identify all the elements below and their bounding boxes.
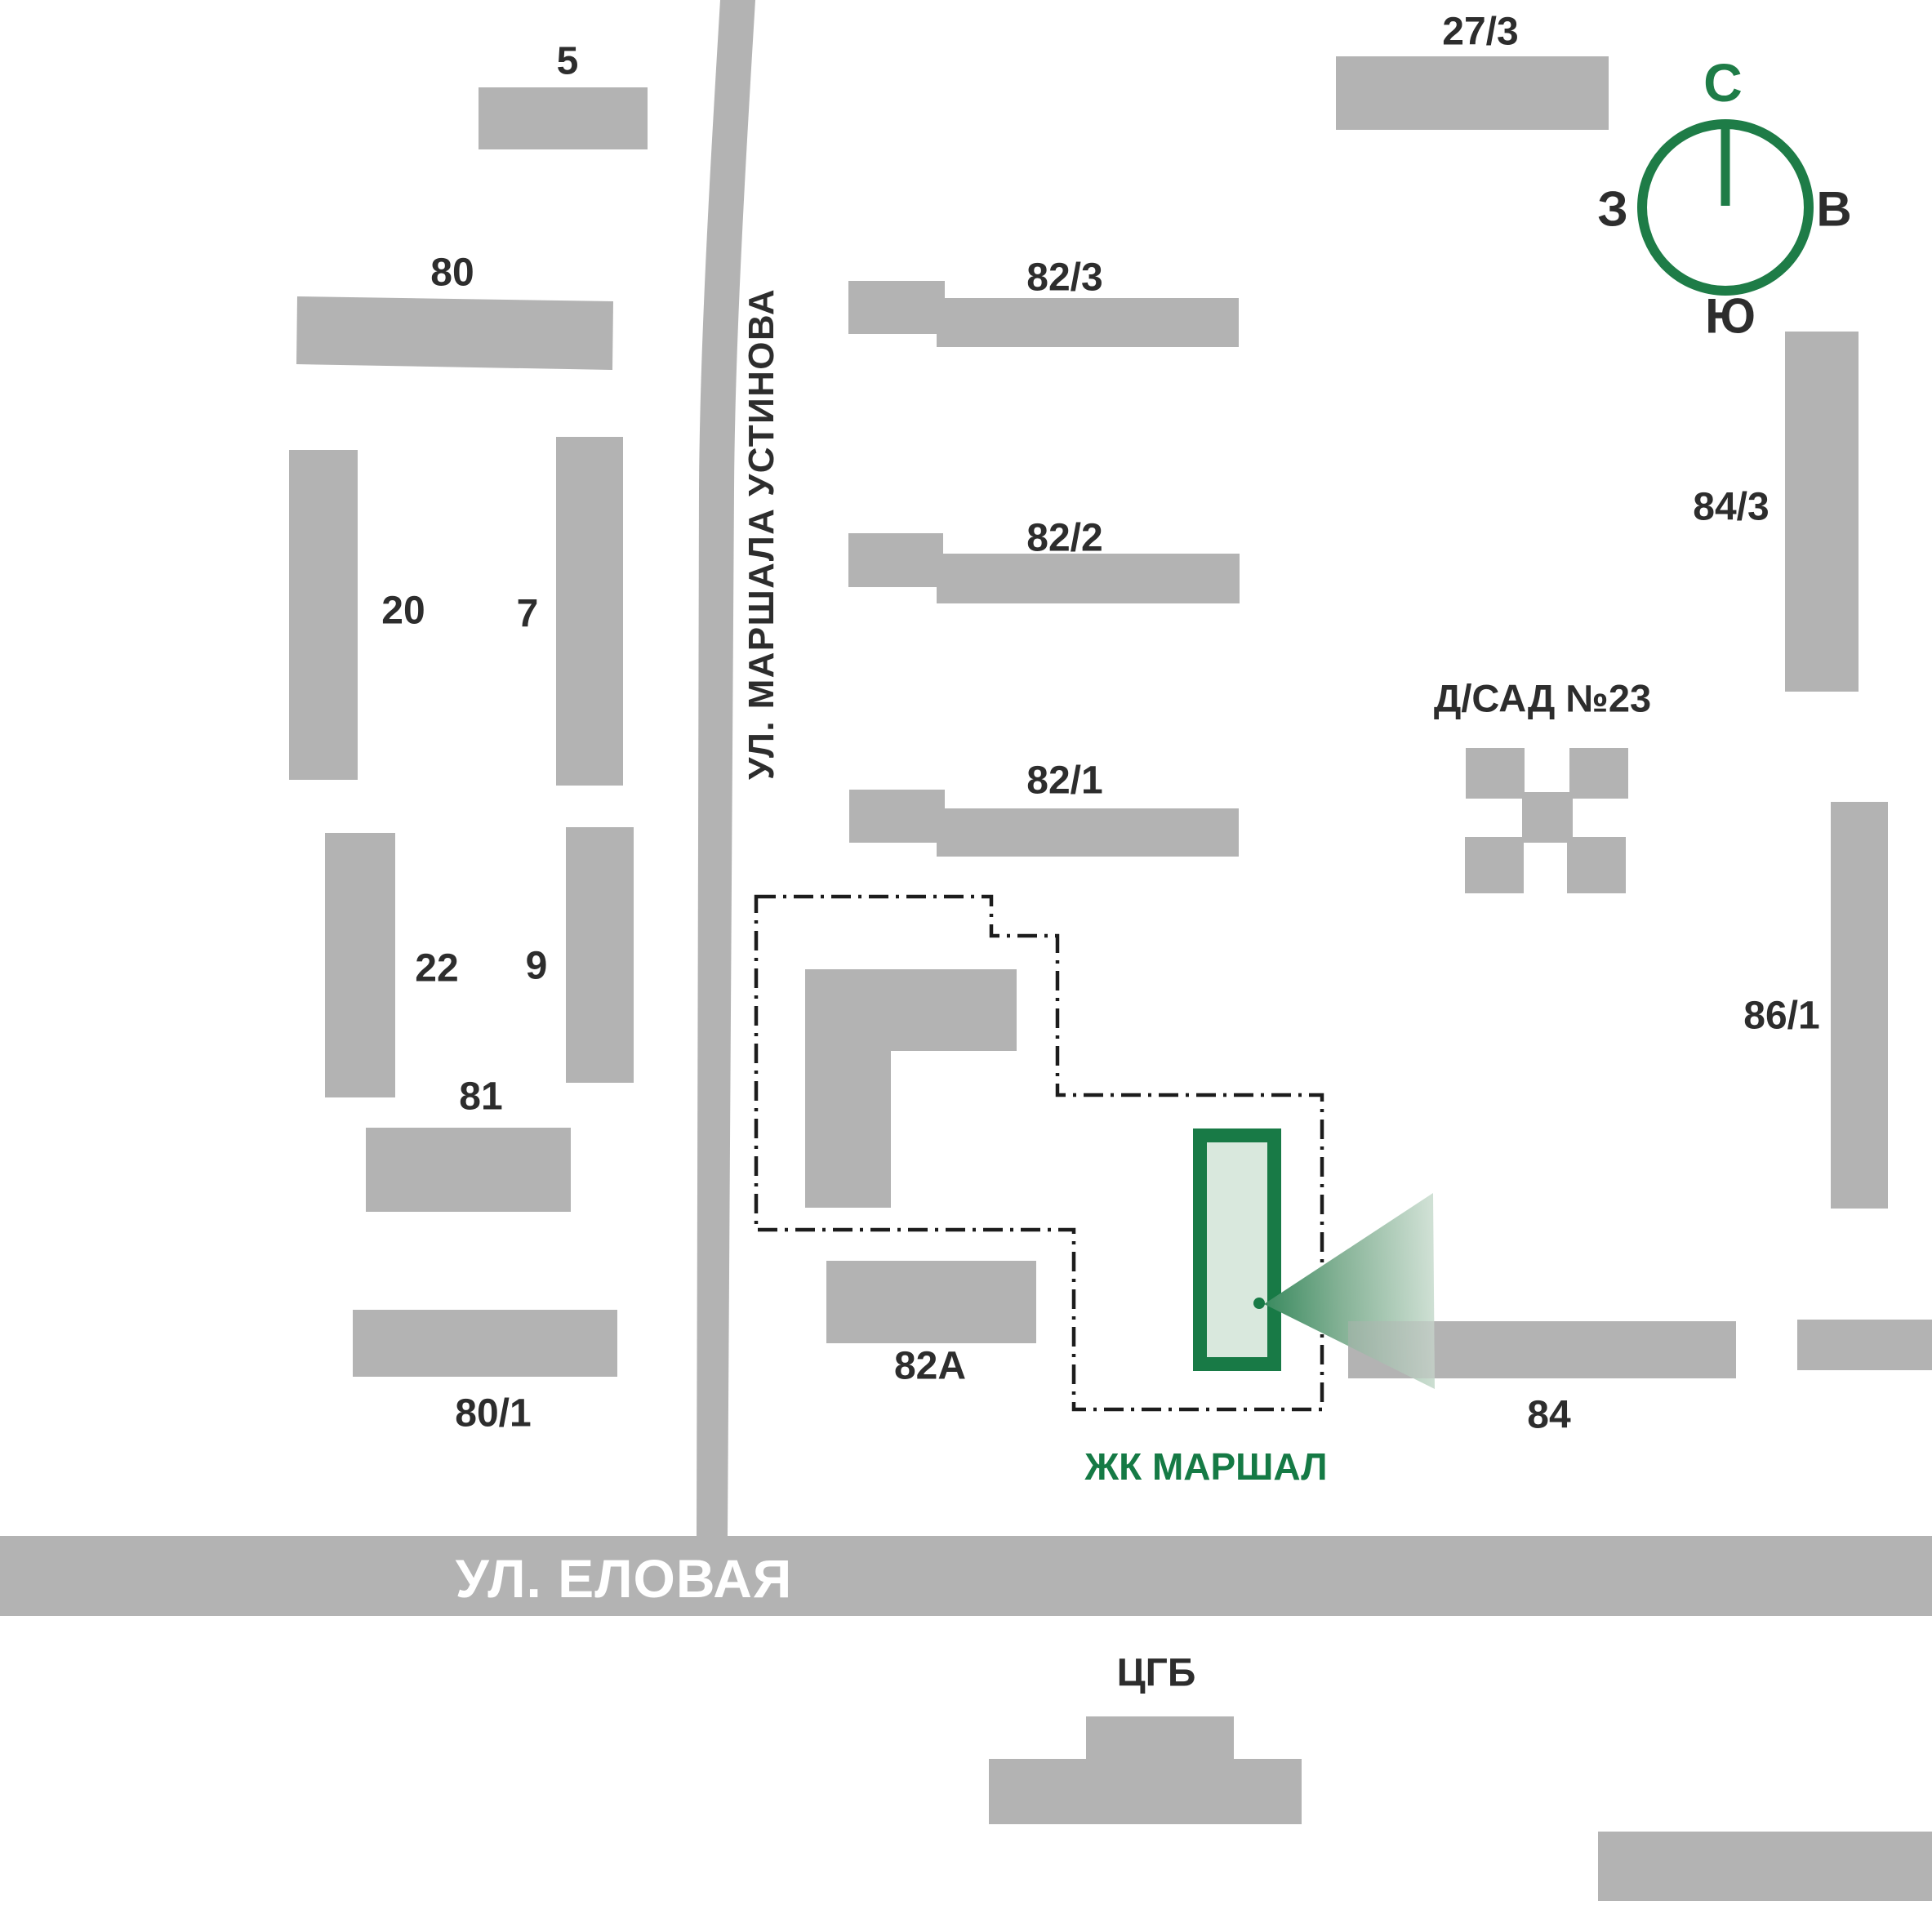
svg-text:80: 80 — [430, 252, 474, 295]
svg-text:7: 7 — [517, 593, 539, 636]
svg-text:22: 22 — [415, 947, 458, 990]
svg-text:82/1: 82/1 — [1026, 759, 1102, 803]
svg-text:82/3: 82/3 — [1026, 256, 1102, 300]
svg-text:82А: 82А — [894, 1345, 966, 1388]
svg-text:ЖК МАРШАЛ: ЖК МАРШАЛ — [1084, 1445, 1328, 1488]
svg-text:84/3: 84/3 — [1693, 486, 1769, 529]
svg-text:81: 81 — [459, 1075, 502, 1119]
svg-text:9: 9 — [526, 945, 548, 988]
svg-text:В: В — [1816, 182, 1851, 237]
svg-text:5: 5 — [557, 40, 579, 83]
svg-text:З: З — [1597, 182, 1628, 237]
svg-text:20: 20 — [381, 590, 425, 633]
svg-text:82/2: 82/2 — [1026, 517, 1102, 560]
svg-text:Ю: Ю — [1705, 289, 1756, 344]
svg-text:86/1: 86/1 — [1743, 995, 1819, 1038]
svg-text:27/3: 27/3 — [1442, 11, 1518, 54]
svg-text:80/1: 80/1 — [455, 1392, 531, 1436]
svg-text:ЦГБ: ЦГБ — [1117, 1652, 1196, 1695]
svg-text:С: С — [1703, 52, 1743, 113]
svg-text:УЛ. ЕЛОВАЯ: УЛ. ЕЛОВАЯ — [456, 1548, 793, 1609]
svg-text:УЛ. МАРШАЛА УСТИНОВА: УЛ. МАРШАЛА УСТИНОВА — [741, 288, 781, 780]
svg-text:84: 84 — [1527, 1394, 1571, 1437]
svg-text:Д/САД №23: Д/САД №23 — [1434, 677, 1651, 720]
